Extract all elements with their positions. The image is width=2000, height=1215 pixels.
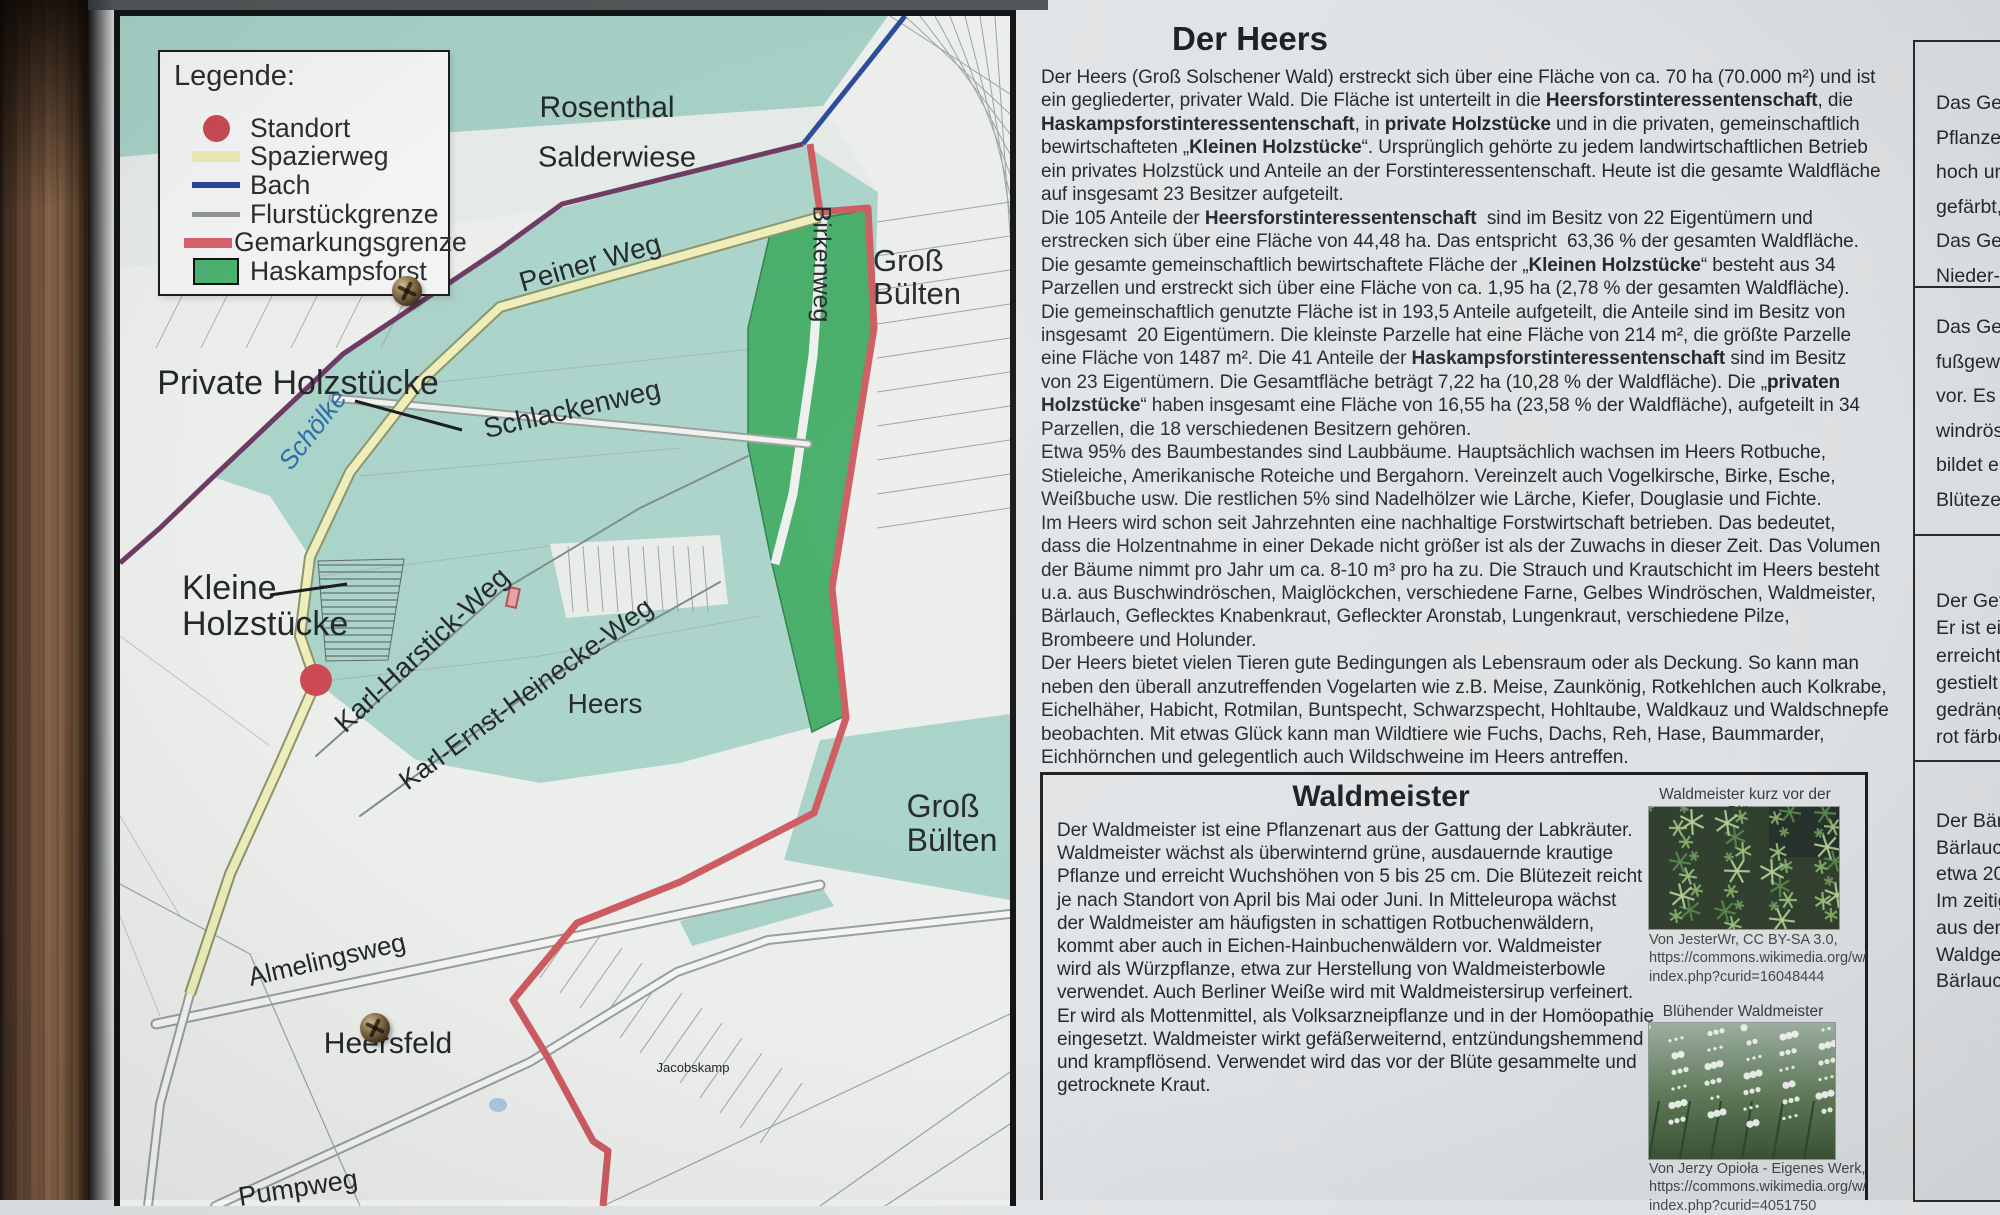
truncated-text-line: erreicht.: [1936, 643, 2000, 670]
photo-credit: Von Jerzy Opioła - Eigenes Werk,https://…: [1649, 1160, 1867, 1215]
waldmeister-photo-green: [1649, 807, 1839, 929]
text-line: verwendet. Auch Berliner Weiße wird mit …: [1057, 981, 1657, 1004]
truncated-text-line: Der Gefl: [1936, 588, 2000, 615]
map-label-kleine-holzstücke: KleineHolzstücke: [182, 570, 348, 642]
map-legend: Legende: StandortSpazierwegBachFlurstück…: [158, 50, 450, 296]
text-line: Holzstücke“ haben insgesamt eine Fläche …: [1041, 394, 1897, 417]
legend-label: Gemarkungsgrenze: [234, 227, 467, 258]
map-label-jacobskamp: Jacobskamp: [657, 1061, 730, 1075]
legend-items: StandortSpazierwegBachFlurstückgrenzeGem…: [160, 114, 448, 286]
gemarkungsgrenze-swatch-icon: [184, 238, 232, 248]
text-line: Der Heers bietet vielen Tieren gute Bedi…: [1041, 652, 1897, 675]
text-line: insgesamt 20 Eigentümern. Die kleinste P…: [1041, 324, 1897, 347]
truncated-text-line: rot färbe: [1936, 724, 2000, 751]
credit-line: https://commons.wikimedia.org/w/: [1649, 1178, 1867, 1196]
text-line: beobachten. Mit etwas Glück kann man Wil…: [1041, 723, 1897, 746]
text-line: Die gesamte gemeinschaftlich bewirtschaf…: [1041, 254, 1897, 277]
text-line: Parzellen, die 18 verschiedenen Besitzer…: [1041, 418, 1897, 441]
waldmeister-title: Waldmeister: [1051, 780, 1711, 814]
photo-caption: Blühender Waldmeister: [1643, 1003, 1843, 1021]
truncated-text-line: Das Gel: [1936, 310, 2000, 345]
text-line: Brombeere und Holunder.: [1041, 629, 1897, 652]
legend-item: Standort: [160, 114, 448, 143]
truncated-text-line: gefärbt,: [1936, 190, 2000, 225]
page-title: Der Heers: [1040, 20, 1460, 58]
text-line: Weißbuche usw. Die restlichen 5% sind Na…: [1041, 488, 1897, 511]
truncated-text-line: gedrängt: [1936, 697, 2000, 724]
text-line: auf insgesamt 23 Besitzer aufgeteilt.: [1041, 183, 1897, 206]
truncated-text-line: Das Ge: [1936, 86, 2000, 121]
text-line: wird als Würzpflanze, etwa zur Herstellu…: [1057, 958, 1657, 981]
map-panel: Legende: StandortSpazierwegBachFlurstück…: [114, 10, 1016, 1206]
info-board-photo: { "board": { "title": "Der Heers", "arti…: [0, 0, 2000, 1200]
text-line: Der Waldmeister ist eine Pflanzenart aus…: [1057, 819, 1657, 842]
truncated-text-line: etwa 20: [1936, 861, 2000, 888]
text-line: Stieleiche, Amerikanische Roteiche und B…: [1041, 465, 1897, 488]
text-line: getrocknete Kraut.: [1057, 1074, 1657, 1097]
truncated-text-line: fußgewä: [1936, 345, 2000, 380]
truncated-text-line: Im zeitige: [1936, 888, 2000, 915]
photo-credit: Von JesterWr, CC BY-SA 3.0,https://commo…: [1649, 931, 1867, 986]
haskampsforst-swatch-icon: [193, 258, 239, 285]
map-label-groß-bülten: GroßBülten: [873, 245, 961, 311]
text-line: Parzellen und erstreckt sich über eine F…: [1041, 277, 1897, 300]
truncated-text-line: Waldges: [1936, 942, 2000, 969]
credit-line: Von Jerzy Opioła - Eigenes Werk,: [1649, 1160, 1867, 1178]
text-line: u.a. aus Buschwindröschen, Maiglöckchen,…: [1041, 582, 1897, 605]
truncated-text-line: bildet ei: [1936, 448, 2000, 483]
text-line: Die gemeinschaftlich genutzte Fläche ist…: [1041, 301, 1897, 324]
side-text-box: Das GePflanzehoch ungefärbt,Das GeNieder…: [1913, 40, 2000, 288]
standort-swatch-icon: [203, 115, 230, 142]
legend-item: Flurstückgrenze: [160, 200, 448, 229]
truncated-text-line: Blütezei: [1936, 483, 2000, 518]
truncated-text-line: aus dene: [1936, 915, 2000, 942]
map-label-almelingsweg: Almelingsweg: [246, 929, 408, 992]
legend-item: Spazierweg: [160, 143, 448, 172]
text-line: und krampflösend. Verwendet wird das vor…: [1057, 1051, 1657, 1074]
flurstückgrenze-swatch-icon: [192, 212, 240, 217]
map-label-rosenthal: Rosenthal: [539, 92, 674, 124]
spazierweg-swatch-icon: [192, 151, 240, 162]
text-line: der Waldmeister am häufigsten in schatti…: [1057, 912, 1657, 935]
text-line: Waldmeister wächst als überwinternd grün…: [1057, 842, 1657, 865]
credit-line: index.php?curid=16048444: [1649, 968, 1867, 986]
text-line: Pflanze und erreicht Wuchshöhen von 5 bi…: [1057, 865, 1657, 888]
truncated-text-line: gestielt u: [1936, 670, 2000, 697]
board-top-edge: [88, 0, 1048, 10]
legend-item: Bach: [160, 171, 448, 200]
text-line: Eichhörnchen und gelegentlich auch Wilds…: [1041, 746, 1897, 769]
legend-label: Standort: [250, 113, 350, 144]
legend-item: Gemarkungsgrenze: [160, 228, 448, 257]
side-text-box: Das Gelfußgewävor. Es iwindrösebildet ei…: [1913, 288, 2000, 536]
text-line: ein privates Holzstück und Anteile an de…: [1041, 160, 1897, 183]
board-edge-shadow: [88, 0, 114, 1200]
text-line: Die 105 Anteile der Heersforstinteressen…: [1041, 207, 1897, 230]
text-line: Er wird als Mottenmittel, als Volksarzne…: [1057, 1005, 1657, 1028]
wood-shadow: [0, 0, 88, 210]
truncated-text-line: Bärlauch: [1936, 968, 2000, 995]
map-label-heers: Heers: [568, 689, 643, 719]
waldmeister-text: Der Waldmeister ist eine Pflanzenart aus…: [1057, 819, 1657, 1097]
waldmeister-box: Waldmeister Der Waldmeister ist eine Pfl…: [1040, 772, 1868, 1200]
screw-icon: [392, 276, 422, 306]
text-line: neben den überall anzutreffenden Vogelar…: [1041, 676, 1897, 699]
map-label-birkenweg: Birkenweg: [808, 206, 835, 323]
text-line: von 23 Eigentümern. Die Gesamtfläche bet…: [1041, 371, 1897, 394]
legend-label: Flurstückgrenze: [250, 199, 439, 230]
truncated-text-line: Er ist ein: [1936, 615, 2000, 642]
side-text-box: Der BärlaBärlauchetwa 20Im zeitigeaus de…: [1913, 762, 2000, 1202]
truncated-text-line: hoch un: [1936, 155, 2000, 190]
truncated-text-line: vor. Es i: [1936, 379, 2000, 414]
text-line: erstrecken sich über eine Fläche von 44,…: [1041, 230, 1897, 253]
text-line: der Bäume nimmt pro Jahr um ca. 8-10 m³ …: [1041, 559, 1897, 582]
screw-icon: [360, 1013, 390, 1043]
text-line: Haskampsforstinteressentenschaft, in pri…: [1041, 113, 1897, 136]
truncated-text-line: Bärlauch: [1936, 835, 2000, 862]
text-line: je nach Standort von April bis Mai oder …: [1057, 889, 1657, 912]
legend-title: Legende:: [174, 60, 448, 93]
map-label-private-holzstücke: Private Holzstücke: [157, 365, 439, 401]
truncated-text-line: Pflanze: [1936, 121, 2000, 156]
legend-label: Spazierweg: [250, 141, 388, 172]
credit-line: Von JesterWr, CC BY-SA 3.0,: [1649, 931, 1867, 949]
side-text-box: Der GeflEr ist einerreicht.gestielt uged…: [1913, 536, 2000, 762]
text-line: Etwa 95% des Baumbestandes sind Laubbäum…: [1041, 441, 1897, 464]
text-line: eingesetzt. Waldmeister wirkt gefäßerwei…: [1057, 1028, 1657, 1051]
map-label-groß-bülten: GroßBülten: [907, 790, 998, 858]
truncated-text-line: windröse: [1936, 414, 2000, 449]
text-line: kommt aber auch in Eichen-Hainbuchenwäld…: [1057, 935, 1657, 958]
text-line: Eichelhäher, Habicht, Rotmilan, Buntspec…: [1041, 699, 1897, 722]
credit-line: https://commons.wikimedia.org/w/: [1649, 949, 1867, 967]
map-label-pumpweg: Pumpweg: [236, 1164, 359, 1211]
text-line: bewirtschafteten „Kleinen Holzstücke“. U…: [1041, 136, 1897, 159]
text-line: Der Heers (Groß Solschener Wald) erstrec…: [1041, 66, 1897, 89]
text-line: eine Fläche von 1487 m². Die 41 Anteile …: [1041, 347, 1897, 370]
waldmeister-photo-flowers: [1649, 1023, 1835, 1159]
text-line: ein gegliederter, privater Wald. Die Flä…: [1041, 89, 1897, 112]
truncated-text-line: Der Bärla: [1936, 808, 2000, 835]
map-label-salderwiese: Salderwiese: [538, 143, 696, 174]
text-line: Bärlauch, Geflecktes Knabenkraut, Geflec…: [1041, 605, 1897, 628]
truncated-text-line: Nieder-: [1936, 259, 2000, 288]
truncated-text-line: Das Ge: [1936, 224, 2000, 259]
article-text: Der Heers (Groß Solschener Wald) erstrec…: [1041, 66, 1897, 770]
map-label-peiner-weg: Peiner Weg: [516, 229, 664, 298]
text-line: Im Heers wird schon seit Jahrzehnten ein…: [1041, 512, 1897, 535]
map-label-schlackenweg: Schlackenweg: [481, 374, 664, 444]
legend-label: Bach: [250, 170, 310, 201]
bach-swatch-icon: [192, 182, 240, 188]
text-line: dass die Holzentnahme in einer Dekade ni…: [1041, 535, 1897, 558]
